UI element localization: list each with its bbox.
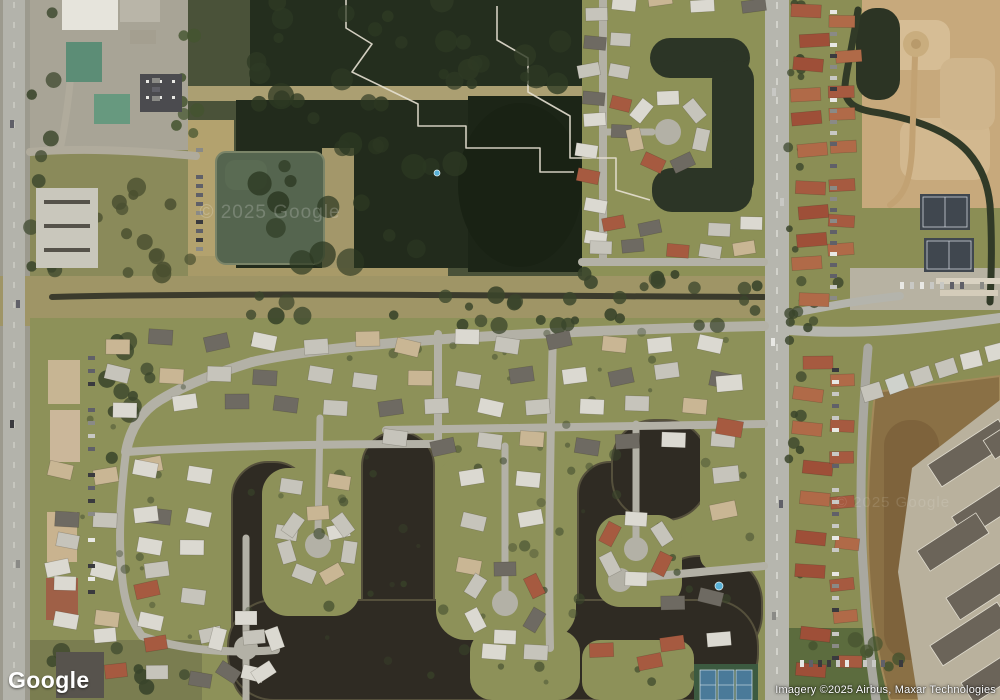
svg-text:© 2025 Google: © 2025 Google xyxy=(199,202,340,223)
satellite-imagery: © 2025 Google© 2025 Google xyxy=(0,0,1000,700)
map-viewport[interactable]: © 2025 Google© 2025 Google Google Imager… xyxy=(0,0,1000,700)
svg-text:© 2025 Google: © 2025 Google xyxy=(836,494,950,511)
google-logo[interactable]: Google xyxy=(8,667,90,694)
imagery-attribution: Imagery ©2025 Airbus, Maxar Technologies xyxy=(775,684,996,696)
